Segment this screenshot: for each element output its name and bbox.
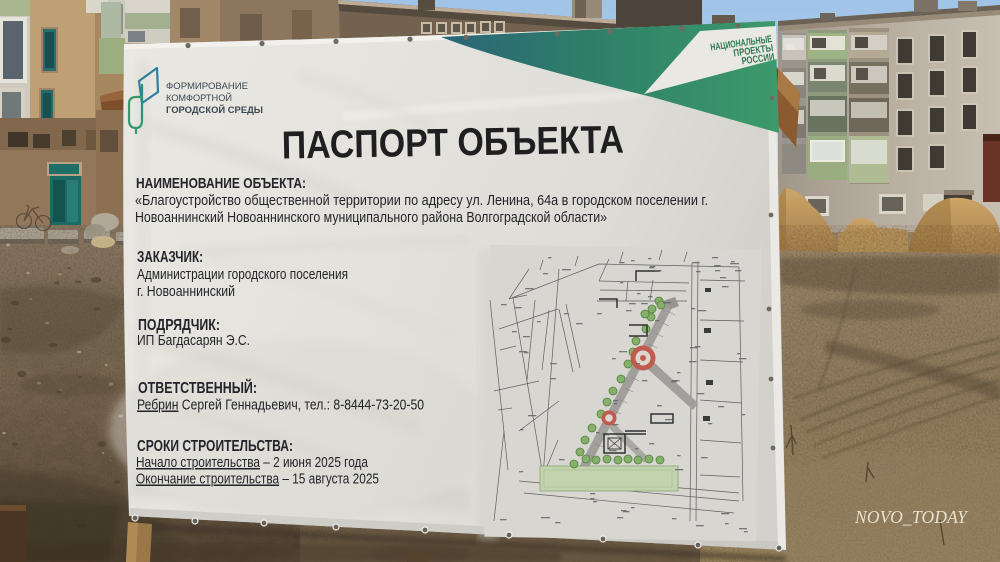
svg-text:СРОКИ СТРОИТЕЛЬСТВА:: СРОКИ СТРОИТЕЛЬСТВА: bbox=[137, 438, 293, 455]
svg-text:КОМФОРТНОЙ: КОМФОРТНОЙ bbox=[166, 92, 232, 104]
svg-text:Окончание строительства – 15: Окончание строительства – 15 августа 202… bbox=[136, 471, 379, 488]
svg-text:ГОРОДСКОЙ СРЕДЫ: ГОРОДСКОЙ СРЕДЫ bbox=[166, 104, 263, 116]
svg-text:Начало строительства – 2 июня: Начало строительства – 2 июня 2025 года bbox=[136, 454, 369, 471]
svg-text:Администрации городского посел: Администрации городского поселения bbox=[137, 266, 348, 283]
svg-text:«Благоустройство общественной: «Благоустройство общественной территории… bbox=[135, 192, 708, 209]
svg-text:ЗАКАЗЧИК:: ЗАКАЗЧИК: bbox=[137, 249, 203, 266]
svg-text:ИП Багдасарян Э.С.: ИП Багдасарян Э.С. bbox=[137, 332, 250, 349]
svg-text:НАИМЕНОВАНИЕ ОБЪЕКТА:: НАИМЕНОВАНИЕ ОБЪЕКТА: bbox=[136, 175, 306, 192]
svg-text:Ребрин Сергей Геннадьевич, тел: Ребрин Сергей Геннадьевич, тел.: 8-8444-… bbox=[137, 397, 424, 414]
svg-text:ОТВЕТСТВЕННЫЙ:: ОТВЕТСТВЕННЫЙ: bbox=[138, 379, 257, 397]
svg-text:ПАСПОРТ ОБЪЕКТА: ПАСПОРТ ОБЪЕКТА bbox=[281, 119, 624, 168]
svg-text:Новоаннинский Новоаннинского м: Новоаннинский Новоаннинского муниципальн… bbox=[135, 209, 607, 226]
svg-text:NOVO_TODAY: NOVO_TODAY bbox=[854, 507, 969, 527]
svg-text:г. Новоаннинский: г. Новоаннинский bbox=[137, 283, 235, 300]
svg-text:ФОРМИРОВАНИЕ: ФОРМИРОВАНИЕ bbox=[166, 81, 248, 92]
